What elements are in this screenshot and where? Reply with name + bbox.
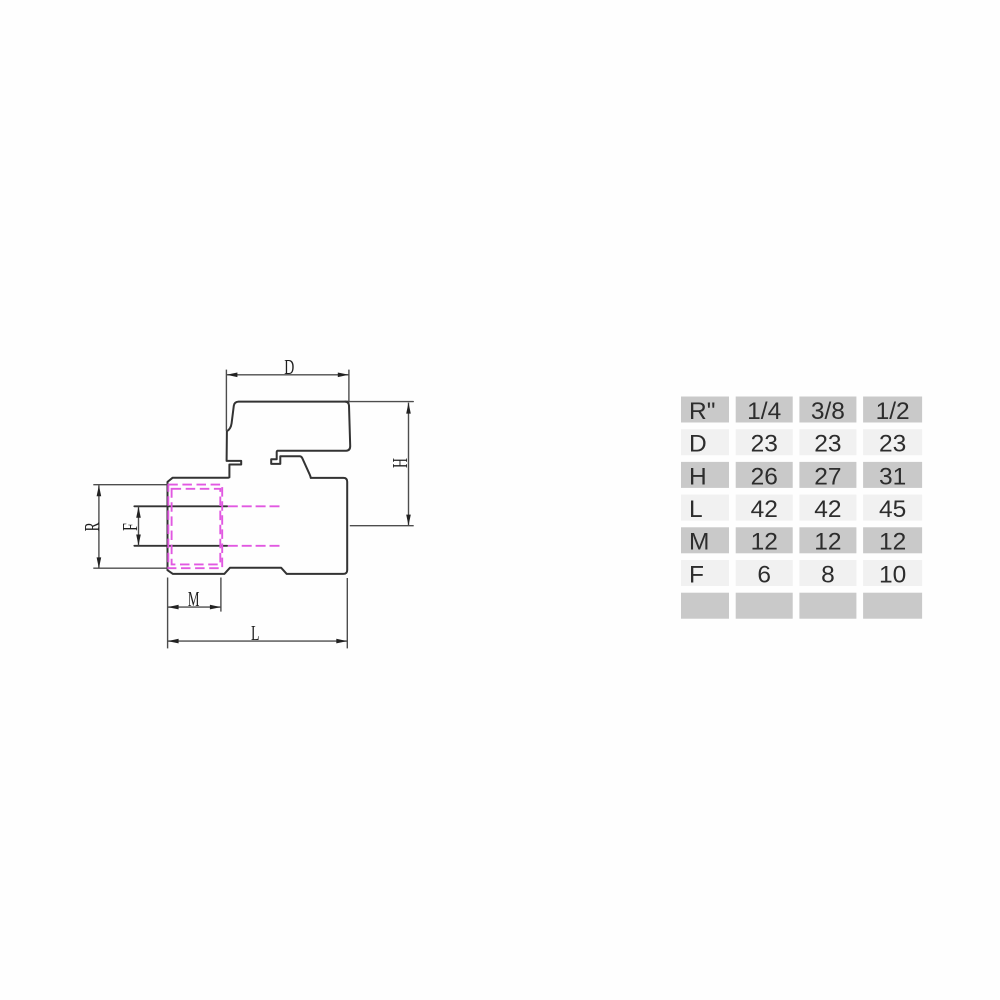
svg-text:42: 42 <box>751 496 778 523</box>
svg-text:12: 12 <box>879 529 906 556</box>
svg-text:23: 23 <box>879 431 906 458</box>
svg-text:D: D <box>689 431 707 458</box>
svg-text:12: 12 <box>751 529 778 556</box>
svg-text:M: M <box>188 587 200 611</box>
svg-text:12: 12 <box>814 529 841 556</box>
svg-text:D: D <box>284 355 294 379</box>
svg-text:R: R <box>80 522 104 531</box>
svg-text:M: M <box>689 529 709 556</box>
svg-text:3/8: 3/8 <box>811 398 845 425</box>
svg-text:8: 8 <box>821 561 835 588</box>
svg-text:1/4: 1/4 <box>747 398 781 425</box>
svg-text:6: 6 <box>757 561 771 588</box>
svg-text:45: 45 <box>879 496 906 523</box>
svg-text:F: F <box>689 561 704 588</box>
svg-text:23: 23 <box>814 431 841 458</box>
svg-text:23: 23 <box>751 431 778 458</box>
svg-text:L: L <box>689 496 703 523</box>
svg-text:26: 26 <box>751 463 778 490</box>
svg-text:R": R" <box>689 398 715 425</box>
svg-text:42: 42 <box>814 496 841 523</box>
svg-text:27: 27 <box>814 463 841 490</box>
svg-text:1/2: 1/2 <box>876 398 910 425</box>
svg-text:L: L <box>251 621 259 645</box>
svg-text:31: 31 <box>879 463 906 490</box>
svg-text:H: H <box>689 463 707 490</box>
svg-text:F: F <box>118 523 142 531</box>
svg-text:H: H <box>388 458 412 468</box>
svg-text:10: 10 <box>879 561 906 588</box>
